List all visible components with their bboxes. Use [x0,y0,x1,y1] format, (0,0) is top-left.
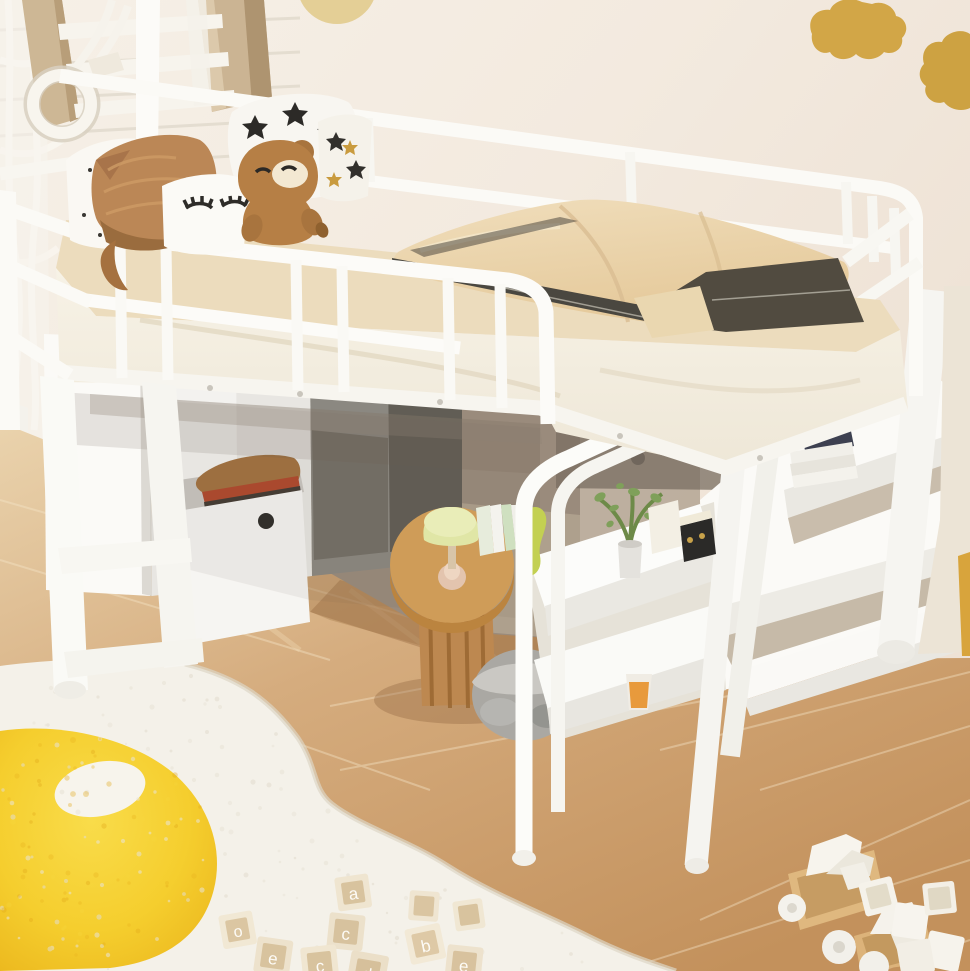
svg-text:e: e [458,956,469,971]
